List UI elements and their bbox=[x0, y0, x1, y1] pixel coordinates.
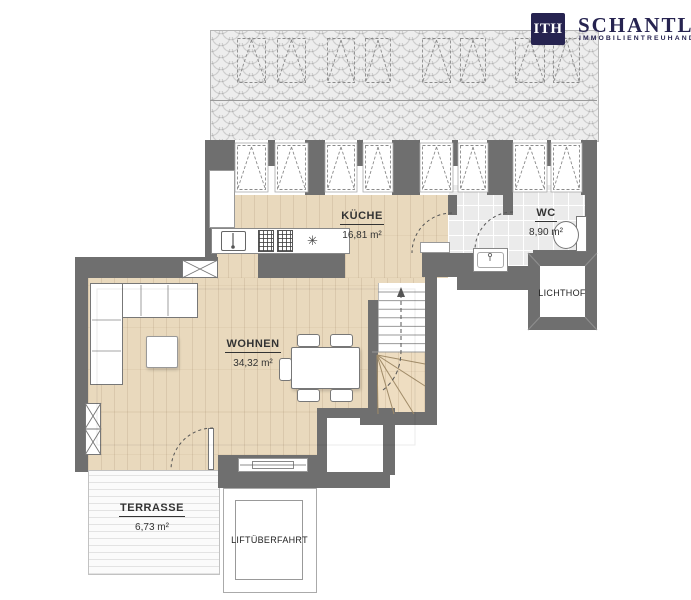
window-glass bbox=[252, 461, 294, 469]
room-name-terrasse: TERRASSE bbox=[119, 502, 185, 517]
room-label-wc: WC 8,90 m² bbox=[506, 203, 586, 240]
washbasin-inner bbox=[477, 252, 504, 268]
chair bbox=[297, 389, 320, 402]
shaft-box bbox=[182, 260, 218, 278]
room-label-terrasse: TERRASSE 6,73 m² bbox=[102, 498, 202, 535]
wall-segment bbox=[448, 195, 457, 215]
window-mullion bbox=[268, 140, 275, 166]
room-name-kueche: KÜCHE bbox=[340, 210, 384, 225]
roof-eave-line bbox=[210, 100, 597, 101]
wall-segment bbox=[383, 418, 395, 475]
structural-column bbox=[85, 403, 101, 455]
coffee-table bbox=[146, 336, 178, 368]
room-label-liftueberfahrt: LIFTÜBERFAHRT bbox=[227, 535, 312, 545]
wall-segment bbox=[581, 140, 597, 195]
void-room bbox=[327, 418, 383, 472]
wall-segment bbox=[218, 472, 390, 488]
room-area-kueche: 16,81 m² bbox=[342, 230, 381, 241]
room-name-lichthof: LICHTHOF bbox=[538, 288, 585, 298]
floor-plan: ✳ KÜCHE 16,81 m² WC 8,90 m² WOHNEN 34,32… bbox=[0, 0, 691, 600]
room-name-wohnen: WOHNEN bbox=[225, 338, 280, 353]
kitchen-low-cabinet bbox=[420, 242, 450, 253]
ith-logo-mark: ITH bbox=[531, 13, 565, 45]
wall-segment bbox=[368, 300, 378, 420]
window-mullion bbox=[357, 140, 363, 166]
stove-icon bbox=[277, 230, 293, 252]
wall-segment bbox=[392, 140, 420, 195]
wall-segment bbox=[305, 140, 325, 195]
sofa-vertical bbox=[90, 283, 123, 385]
wall-segment bbox=[317, 408, 395, 418]
kitchen-sink-icon bbox=[221, 231, 246, 251]
room-area-wohnen: 34,32 m² bbox=[233, 358, 272, 369]
wall-segment bbox=[258, 252, 345, 278]
stair-winders bbox=[372, 352, 425, 414]
room-name-wc: WC bbox=[535, 207, 556, 222]
chair bbox=[330, 389, 353, 402]
stove-icon bbox=[258, 230, 274, 252]
wall-segment bbox=[425, 277, 437, 425]
roof-hatch bbox=[210, 30, 599, 142]
room-label-kueche: KÜCHE 16,81 m² bbox=[312, 206, 412, 243]
room-name-liftueberfahrt: LIFTÜBERFAHRT bbox=[231, 535, 308, 545]
room-area-terrasse: 6,73 m² bbox=[135, 522, 169, 533]
window-mullion bbox=[452, 140, 458, 166]
room-label-lichthof: LICHTHOF bbox=[532, 288, 592, 298]
chair bbox=[330, 334, 353, 347]
wall-segment bbox=[487, 140, 513, 195]
living-floor-lower bbox=[88, 412, 317, 455]
room-label-wohnen: WOHNEN 34,32 m² bbox=[203, 334, 303, 371]
kitchen-tall-cabinet bbox=[209, 170, 235, 228]
terrace-door-leaf bbox=[208, 428, 214, 470]
logo-subtitle: IMMOBILIENTREUHAND bbox=[579, 35, 691, 42]
window-mullion bbox=[547, 140, 551, 166]
stair-upper-flight bbox=[378, 283, 426, 355]
room-area-wc: 8,90 m² bbox=[529, 227, 563, 238]
